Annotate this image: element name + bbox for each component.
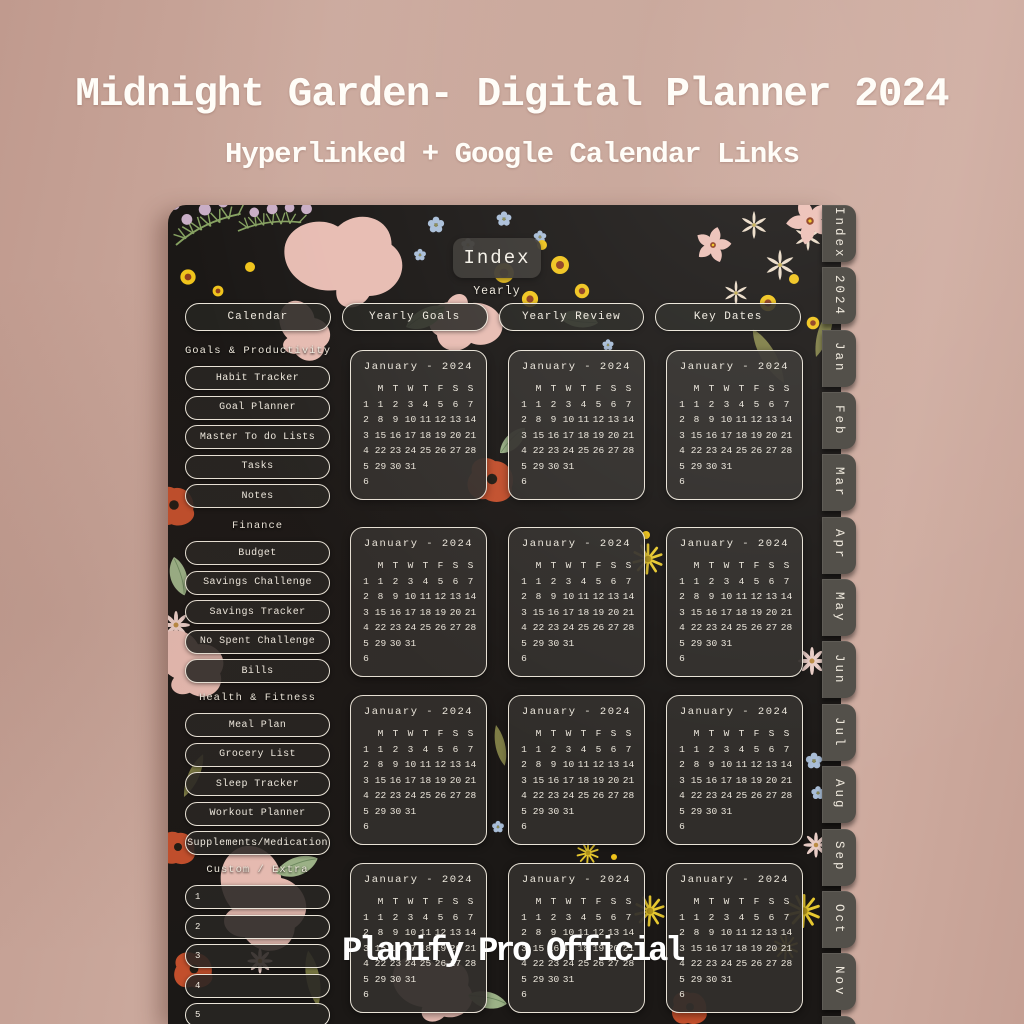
tab-mar[interactable]: Mar: [822, 454, 856, 511]
week-number: 4: [517, 789, 531, 802]
day-header: M: [689, 895, 704, 908]
date-cell: [749, 637, 764, 650]
date-cell: 4: [576, 743, 591, 756]
date-cell: 31: [561, 460, 576, 473]
date-cell: 15: [373, 429, 388, 442]
tab-dec[interactable]: Dec: [822, 1016, 856, 1024]
date-cell: 1: [373, 575, 388, 588]
date-cell: 19: [433, 606, 448, 619]
date-cell: 22: [689, 621, 704, 634]
date-cell: 28: [779, 444, 794, 457]
date-cell: 14: [463, 590, 478, 603]
date-cell: 8: [689, 590, 704, 603]
date-cell: 24: [561, 621, 576, 634]
sidebar-item-custom-extra-1[interactable]: 1: [185, 885, 330, 909]
date-cell: [531, 652, 546, 665]
date-cell: 12: [433, 413, 448, 426]
date-cell: 2: [388, 743, 403, 756]
sidebar-item-health-fitness-workout-planner[interactable]: Workout Planner: [185, 802, 330, 826]
date-cell: [591, 637, 606, 650]
date-cell: [734, 652, 749, 665]
date-cell: 9: [388, 758, 403, 771]
date-cell: 11: [734, 590, 749, 603]
week-number: 2: [517, 413, 531, 426]
calendar-card-title: January - 2024: [351, 538, 486, 550]
day-header: T: [734, 382, 749, 395]
date-cell: [689, 820, 704, 833]
date-cell: 27: [606, 444, 621, 457]
date-cell: 31: [561, 637, 576, 650]
date-cell: 21: [463, 774, 478, 787]
date-cell: [749, 988, 764, 1001]
sidebar-item-finance-no-spent-challenge[interactable]: No Spent Challenge: [185, 630, 330, 654]
date-cell: 25: [734, 444, 749, 457]
date-cell: 20: [764, 606, 779, 619]
date-cell: 10: [403, 590, 418, 603]
date-cell: 23: [388, 444, 403, 457]
corner-cell: [359, 559, 373, 572]
week-number: 4: [675, 444, 689, 457]
day-header: T: [546, 895, 561, 908]
date-cell: 5: [749, 398, 764, 411]
sidebar-item-goals-productivity-master-to-do-lists[interactable]: Master To do Lists: [185, 425, 330, 449]
date-cell: [388, 475, 403, 488]
sidebar-item-finance-budget[interactable]: Budget: [185, 541, 330, 565]
date-cell: 18: [734, 774, 749, 787]
calendar-card[interactable]: January - 2024MTWTFSS1123456728910111213…: [350, 350, 487, 500]
date-cell: 2: [704, 398, 719, 411]
date-cell: 4: [576, 911, 591, 924]
day-header: M: [531, 727, 546, 740]
date-cell: [621, 805, 636, 818]
date-cell: 12: [591, 590, 606, 603]
date-cell: [749, 820, 764, 833]
date-cell: 19: [749, 606, 764, 619]
day-header: T: [546, 559, 561, 572]
day-header: M: [531, 382, 546, 395]
date-cell: 20: [448, 774, 463, 787]
week-number: 1: [675, 398, 689, 411]
date-cell: 30: [388, 805, 403, 818]
date-cell: 3: [719, 743, 734, 756]
date-cell: 6: [764, 911, 779, 924]
date-cell: 15: [373, 606, 388, 619]
date-cell: 30: [546, 805, 561, 818]
sidebar-item-finance-savings-tracker[interactable]: Savings Tracker: [185, 600, 330, 624]
date-cell: 2: [546, 911, 561, 924]
date-cell: 29: [531, 973, 546, 986]
date-cell: 2: [546, 398, 561, 411]
date-cell: 28: [779, 621, 794, 634]
date-cell: 13: [606, 758, 621, 771]
date-cell: 30: [546, 637, 561, 650]
day-header: F: [591, 727, 606, 740]
day-header: F: [591, 382, 606, 395]
date-cell: [576, 637, 591, 650]
date-cell: 1: [689, 911, 704, 924]
sidebar-item-health-fitness-supplements-medication[interactable]: Supplements/Medication: [185, 831, 330, 855]
key-dates-button[interactable]: Key Dates: [655, 303, 801, 331]
date-cell: [463, 973, 478, 986]
date-cell: 31: [719, 805, 734, 818]
tab-jul[interactable]: Jul: [822, 704, 856, 761]
section-label: Health & Fitness: [185, 692, 330, 706]
week-number: 2: [517, 590, 531, 603]
corner-cell: [675, 895, 689, 908]
date-cell: [433, 805, 448, 818]
date-cell: 23: [704, 444, 719, 457]
date-cell: 20: [448, 606, 463, 619]
sidebar-item-custom-extra-5[interactable]: 5: [185, 1003, 330, 1024]
date-cell: 18: [734, 429, 749, 442]
week-number: 3: [675, 606, 689, 619]
date-cell: [621, 988, 636, 1001]
date-cell: [689, 475, 704, 488]
calendar-card[interactable]: January - 2024MTWTFSS1123456728910111213…: [666, 350, 803, 500]
date-cell: 6: [606, 911, 621, 924]
day-header: S: [621, 559, 636, 572]
tab-sep[interactable]: Sep: [822, 829, 856, 886]
date-cell: 1: [531, 575, 546, 588]
date-cell: [779, 805, 794, 818]
date-cell: [689, 652, 704, 665]
date-cell: 27: [764, 789, 779, 802]
date-cell: 1: [689, 743, 704, 756]
date-cell: [561, 988, 576, 1001]
date-cell: 8: [531, 413, 546, 426]
calendar-card-title: January - 2024: [351, 874, 486, 886]
date-cell: 3: [561, 911, 576, 924]
date-cell: [606, 460, 621, 473]
date-cell: 12: [591, 758, 606, 771]
date-cell: [418, 988, 433, 1001]
date-cell: [764, 820, 779, 833]
tab-jan[interactable]: Jan: [822, 330, 856, 387]
date-cell: 19: [749, 774, 764, 787]
date-cell: [621, 652, 636, 665]
date-cell: 25: [576, 444, 591, 457]
day-header: S: [606, 559, 621, 572]
date-cell: 28: [463, 444, 478, 457]
date-cell: 7: [463, 575, 478, 588]
date-cell: 6: [448, 575, 463, 588]
date-cell: 1: [689, 575, 704, 588]
sidebar-item-health-fitness-sleep-tracker[interactable]: Sleep Tracker: [185, 772, 330, 796]
date-cell: [689, 988, 704, 1001]
calendar-card[interactable]: January - 2024MTWTFSS1123456728910111213…: [350, 527, 487, 677]
date-cell: [403, 988, 418, 1001]
date-cell: 12: [591, 413, 606, 426]
date-cell: [448, 988, 463, 1001]
day-header: S: [621, 382, 636, 395]
day-header: M: [689, 559, 704, 572]
date-cell: [418, 805, 433, 818]
date-cell: 15: [531, 774, 546, 787]
sidebar-item-goals-productivity-habit-tracker[interactable]: Habit Tracker: [185, 366, 330, 390]
date-cell: 25: [576, 789, 591, 802]
yearly-review-button[interactable]: Yearly Review: [499, 303, 645, 331]
sidebar-item-goals-productivity-goal-planner[interactable]: Goal Planner: [185, 396, 330, 420]
date-cell: [606, 805, 621, 818]
sidebar-item-finance-savings-challenge[interactable]: Savings Challenge: [185, 571, 330, 595]
date-cell: [621, 475, 636, 488]
date-cell: 29: [689, 637, 704, 650]
date-cell: 25: [418, 621, 433, 634]
week-number: 1: [675, 575, 689, 588]
week-number: 6: [517, 820, 531, 833]
day-header: F: [591, 895, 606, 908]
week-number: 4: [517, 444, 531, 457]
date-cell: [463, 652, 478, 665]
week-number: 4: [359, 789, 373, 802]
week-number: 5: [675, 460, 689, 473]
sidebar-item-custom-extra-4[interactable]: 4: [185, 974, 330, 998]
date-cell: 7: [463, 398, 478, 411]
calendar-card[interactable]: January - 2024MTWTFSS1123456728910111213…: [350, 695, 487, 845]
week-number: 1: [517, 575, 531, 588]
day-header: T: [546, 727, 561, 740]
date-cell: 11: [734, 758, 749, 771]
date-cell: [704, 475, 719, 488]
date-cell: [779, 637, 794, 650]
date-cell: 10: [403, 758, 418, 771]
date-cell: 22: [373, 444, 388, 457]
day-header: S: [463, 382, 478, 395]
date-cell: 4: [734, 575, 749, 588]
week-number: 6: [517, 988, 531, 1001]
calendar-card-grid: MTWTFSS112345672891011121314315161718192…: [359, 727, 478, 833]
date-cell: 30: [704, 973, 719, 986]
week-number: 1: [517, 911, 531, 924]
date-cell: 1: [373, 911, 388, 924]
calendar-card[interactable]: January - 2024MTWTFSS1123456728910111213…: [666, 527, 803, 677]
date-cell: 12: [749, 413, 764, 426]
date-cell: 6: [764, 575, 779, 588]
date-cell: 31: [719, 973, 734, 986]
week-number: 4: [675, 789, 689, 802]
date-cell: 15: [689, 429, 704, 442]
corner-cell: [675, 382, 689, 395]
date-cell: [779, 988, 794, 1001]
date-cell: 9: [388, 413, 403, 426]
date-cell: 3: [719, 398, 734, 411]
date-cell: 3: [719, 575, 734, 588]
day-header: S: [764, 727, 779, 740]
date-cell: 29: [531, 805, 546, 818]
tab-label: May: [832, 592, 846, 624]
date-cell: [734, 820, 749, 833]
date-cell: 10: [403, 413, 418, 426]
date-cell: 31: [403, 805, 418, 818]
day-header: S: [621, 727, 636, 740]
date-cell: 4: [418, 398, 433, 411]
sidebar-item-goals-productivity-tasks[interactable]: Tasks: [185, 455, 330, 479]
date-cell: 31: [719, 460, 734, 473]
date-cell: [764, 988, 779, 1001]
date-cell: [433, 973, 448, 986]
week-number: 6: [675, 820, 689, 833]
date-cell: 28: [463, 621, 478, 634]
date-cell: [418, 652, 433, 665]
tab-aug[interactable]: Aug: [822, 766, 856, 823]
date-cell: 13: [606, 413, 621, 426]
date-cell: 29: [531, 460, 546, 473]
date-cell: 15: [689, 774, 704, 787]
date-cell: [546, 475, 561, 488]
date-cell: 16: [388, 429, 403, 442]
day-header: S: [621, 895, 636, 908]
date-cell: 15: [531, 606, 546, 619]
date-cell: 2: [704, 575, 719, 588]
day-header: T: [576, 382, 591, 395]
calendar-card-grid: MTWTFSS112345672891011121314315161718192…: [359, 559, 478, 665]
date-cell: [779, 475, 794, 488]
week-number: 2: [675, 758, 689, 771]
date-cell: 10: [719, 758, 734, 771]
date-cell: 24: [719, 621, 734, 634]
date-cell: 23: [388, 789, 403, 802]
sidebar-item-finance-bills[interactable]: Bills: [185, 659, 330, 683]
date-cell: [561, 820, 576, 833]
week-number: 1: [675, 743, 689, 756]
date-cell: 6: [448, 911, 463, 924]
week-number: 6: [675, 652, 689, 665]
date-cell: 21: [621, 429, 636, 442]
date-cell: 6: [606, 743, 621, 756]
day-header: T: [418, 382, 433, 395]
week-number: 1: [359, 743, 373, 756]
date-cell: 6: [606, 575, 621, 588]
week-number: 5: [675, 637, 689, 650]
day-header: F: [749, 382, 764, 395]
day-header: S: [779, 382, 794, 395]
date-cell: 5: [749, 575, 764, 588]
day-header: S: [764, 382, 779, 395]
tab-feb[interactable]: Feb: [822, 392, 856, 449]
week-number: 6: [359, 652, 373, 665]
date-cell: [779, 820, 794, 833]
day-header: T: [576, 895, 591, 908]
date-cell: 17: [403, 429, 418, 442]
date-cell: [403, 475, 418, 488]
sidebar-item-health-fitness-grocery-list[interactable]: Grocery List: [185, 743, 330, 767]
calendar-card-title: January - 2024: [509, 874, 644, 886]
calendar-card[interactable]: January - 2024MTWTFSS1123456728910111213…: [508, 527, 645, 677]
calendar-card-grid: MTWTFSS112345672891011121314315161718192…: [675, 382, 794, 488]
date-cell: 4: [734, 398, 749, 411]
date-cell: 13: [764, 590, 779, 603]
date-cell: 27: [764, 621, 779, 634]
calendar-button[interactable]: Calendar: [185, 303, 331, 331]
date-cell: 16: [546, 774, 561, 787]
date-cell: 10: [561, 413, 576, 426]
section-label: Custom / Extra: [185, 864, 330, 878]
yearly-links-row: Calendar Yearly Goals Yearly Review Key …: [185, 303, 801, 331]
date-cell: 16: [704, 429, 719, 442]
date-cell: [719, 652, 734, 665]
date-cell: [433, 652, 448, 665]
product-subtitle: Hyperlinked + Google Calendar Links: [0, 138, 1024, 171]
date-cell: 11: [576, 413, 591, 426]
date-cell: 2: [388, 575, 403, 588]
date-cell: 30: [388, 460, 403, 473]
date-cell: 1: [531, 398, 546, 411]
calendar-card-title: January - 2024: [667, 361, 802, 373]
day-header: S: [606, 727, 621, 740]
date-cell: 3: [403, 575, 418, 588]
date-cell: 16: [704, 606, 719, 619]
date-cell: [764, 637, 779, 650]
sidebar-item-goals-productivity-notes[interactable]: Notes: [185, 484, 330, 508]
date-cell: 13: [448, 758, 463, 771]
sidebar-item-health-fitness-meal-plan[interactable]: Meal Plan: [185, 713, 330, 737]
date-cell: 6: [606, 398, 621, 411]
date-cell: [448, 475, 463, 488]
day-header: W: [561, 559, 576, 572]
day-header: T: [734, 559, 749, 572]
tab-may[interactable]: May: [822, 579, 856, 636]
date-cell: 4: [734, 911, 749, 924]
yearly-goals-button[interactable]: Yearly Goals: [342, 303, 488, 331]
tab-2024[interactable]: 2024: [822, 267, 856, 324]
sidebar-section-goals-productivity: Goals & ProductivityHabit TrackerGoal Pl…: [185, 345, 330, 514]
day-header: W: [403, 382, 418, 395]
date-cell: 17: [561, 606, 576, 619]
date-cell: 28: [621, 789, 636, 802]
date-cell: [749, 973, 764, 986]
date-cell: 22: [531, 621, 546, 634]
date-cell: 14: [621, 590, 636, 603]
date-cell: 19: [591, 429, 606, 442]
date-cell: [448, 973, 463, 986]
tab-jun[interactable]: Jun: [822, 641, 856, 698]
date-cell: [764, 652, 779, 665]
calendar-card[interactable]: January - 2024MTWTFSS1123456728910111213…: [666, 695, 803, 845]
date-cell: 30: [546, 973, 561, 986]
date-cell: 29: [689, 460, 704, 473]
date-cell: [576, 820, 591, 833]
day-header: F: [591, 559, 606, 572]
calendar-card[interactable]: January - 2024MTWTFSS1123456728910111213…: [508, 695, 645, 845]
date-cell: 30: [704, 460, 719, 473]
date-cell: 25: [418, 444, 433, 457]
date-cell: 7: [621, 911, 636, 924]
date-cell: 26: [749, 621, 764, 634]
date-cell: 11: [418, 758, 433, 771]
date-cell: [576, 988, 591, 1001]
day-header: T: [388, 727, 403, 740]
date-cell: 31: [403, 973, 418, 986]
date-cell: 4: [576, 398, 591, 411]
tab-index[interactable]: Index: [822, 205, 856, 262]
calendar-card-grid: MTWTFSS112345672891011121314315161718192…: [675, 727, 794, 833]
week-number: 4: [359, 621, 373, 634]
date-cell: [418, 475, 433, 488]
date-cell: [388, 820, 403, 833]
tab-apr[interactable]: Apr: [822, 517, 856, 574]
corner-cell: [675, 727, 689, 740]
date-cell: 9: [546, 590, 561, 603]
date-cell: 3: [403, 398, 418, 411]
date-cell: [591, 973, 606, 986]
section-label: Goals & Productivity: [185, 345, 330, 359]
date-cell: 8: [689, 758, 704, 771]
index-page-button[interactable]: Index: [453, 238, 541, 278]
calendar-card[interactable]: January - 2024MTWTFSS1123456728910111213…: [508, 350, 645, 500]
day-header: S: [448, 559, 463, 572]
date-cell: 2: [546, 743, 561, 756]
date-cell: [531, 988, 546, 1001]
